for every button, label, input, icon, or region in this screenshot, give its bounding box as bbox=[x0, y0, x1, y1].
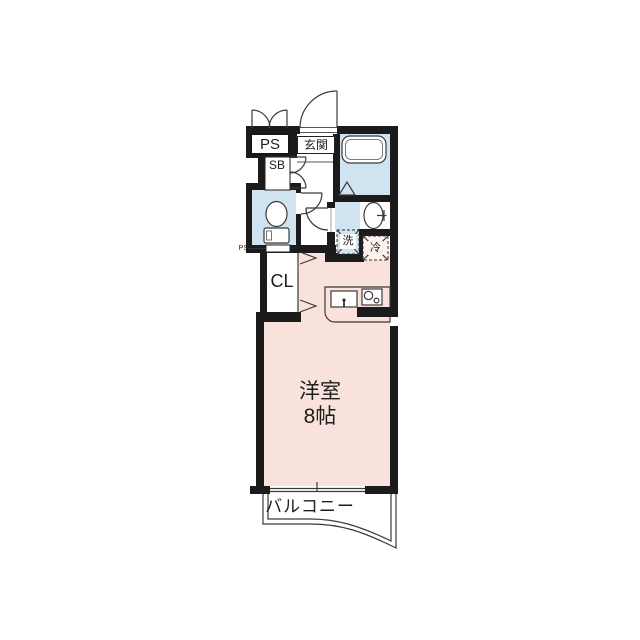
entrance-label: 玄関 bbox=[297, 136, 335, 154]
toilet-bowl bbox=[266, 202, 287, 227]
floor-plan-drawing bbox=[0, 0, 640, 640]
washroom-floor bbox=[335, 202, 360, 230]
wall-segment bbox=[360, 229, 390, 236]
washer-label: 洗 bbox=[340, 234, 356, 249]
shoe-box-label: SB bbox=[264, 158, 290, 172]
door-swing-arc bbox=[269, 110, 287, 128]
wall-segment bbox=[327, 232, 335, 245]
ps-double-door-icon bbox=[252, 110, 287, 128]
wall-segment bbox=[296, 245, 336, 253]
wall-segment bbox=[333, 195, 390, 202]
wall-segment bbox=[337, 126, 398, 134]
toilet-door-arc bbox=[301, 193, 322, 214]
main-room-floor bbox=[298, 253, 390, 486]
balcony-label: バルコニー bbox=[253, 495, 367, 517]
entrance-door-arc bbox=[300, 91, 337, 133]
floor-plan: PS 玄関 SB CL 洗 冷 PS 洋室 8帖 バルコニー bbox=[0, 0, 640, 640]
wall-segment bbox=[327, 202, 335, 208]
room-name-label: 洋室 bbox=[270, 379, 370, 403]
wall-segment bbox=[256, 322, 264, 490]
wall-segment bbox=[365, 486, 398, 494]
door-swing-arc bbox=[300, 91, 337, 128]
faucet-icon bbox=[342, 298, 345, 301]
wall-segment bbox=[246, 183, 252, 253]
wall-segment bbox=[256, 312, 301, 322]
closet-label: CL bbox=[266, 271, 298, 291]
pipe-space-label: PS bbox=[250, 133, 290, 155]
door-swing-arc bbox=[301, 193, 322, 214]
wall-opening bbox=[390, 317, 398, 326]
door-swing-arc bbox=[290, 157, 306, 173]
wall-segment bbox=[296, 190, 301, 193]
bathtub-icon bbox=[342, 136, 386, 163]
room-size-label: 8帖 bbox=[270, 404, 370, 428]
pipe-space-small-label: PS bbox=[230, 244, 248, 253]
fridge-label: 冷 bbox=[368, 241, 383, 255]
door-swing-arc bbox=[306, 208, 328, 230]
door-swing-arc bbox=[252, 110, 270, 128]
toilet-flush-handle bbox=[267, 231, 272, 240]
pipe-space-small-box bbox=[266, 245, 290, 252]
counter-wall-stub bbox=[357, 307, 398, 317]
